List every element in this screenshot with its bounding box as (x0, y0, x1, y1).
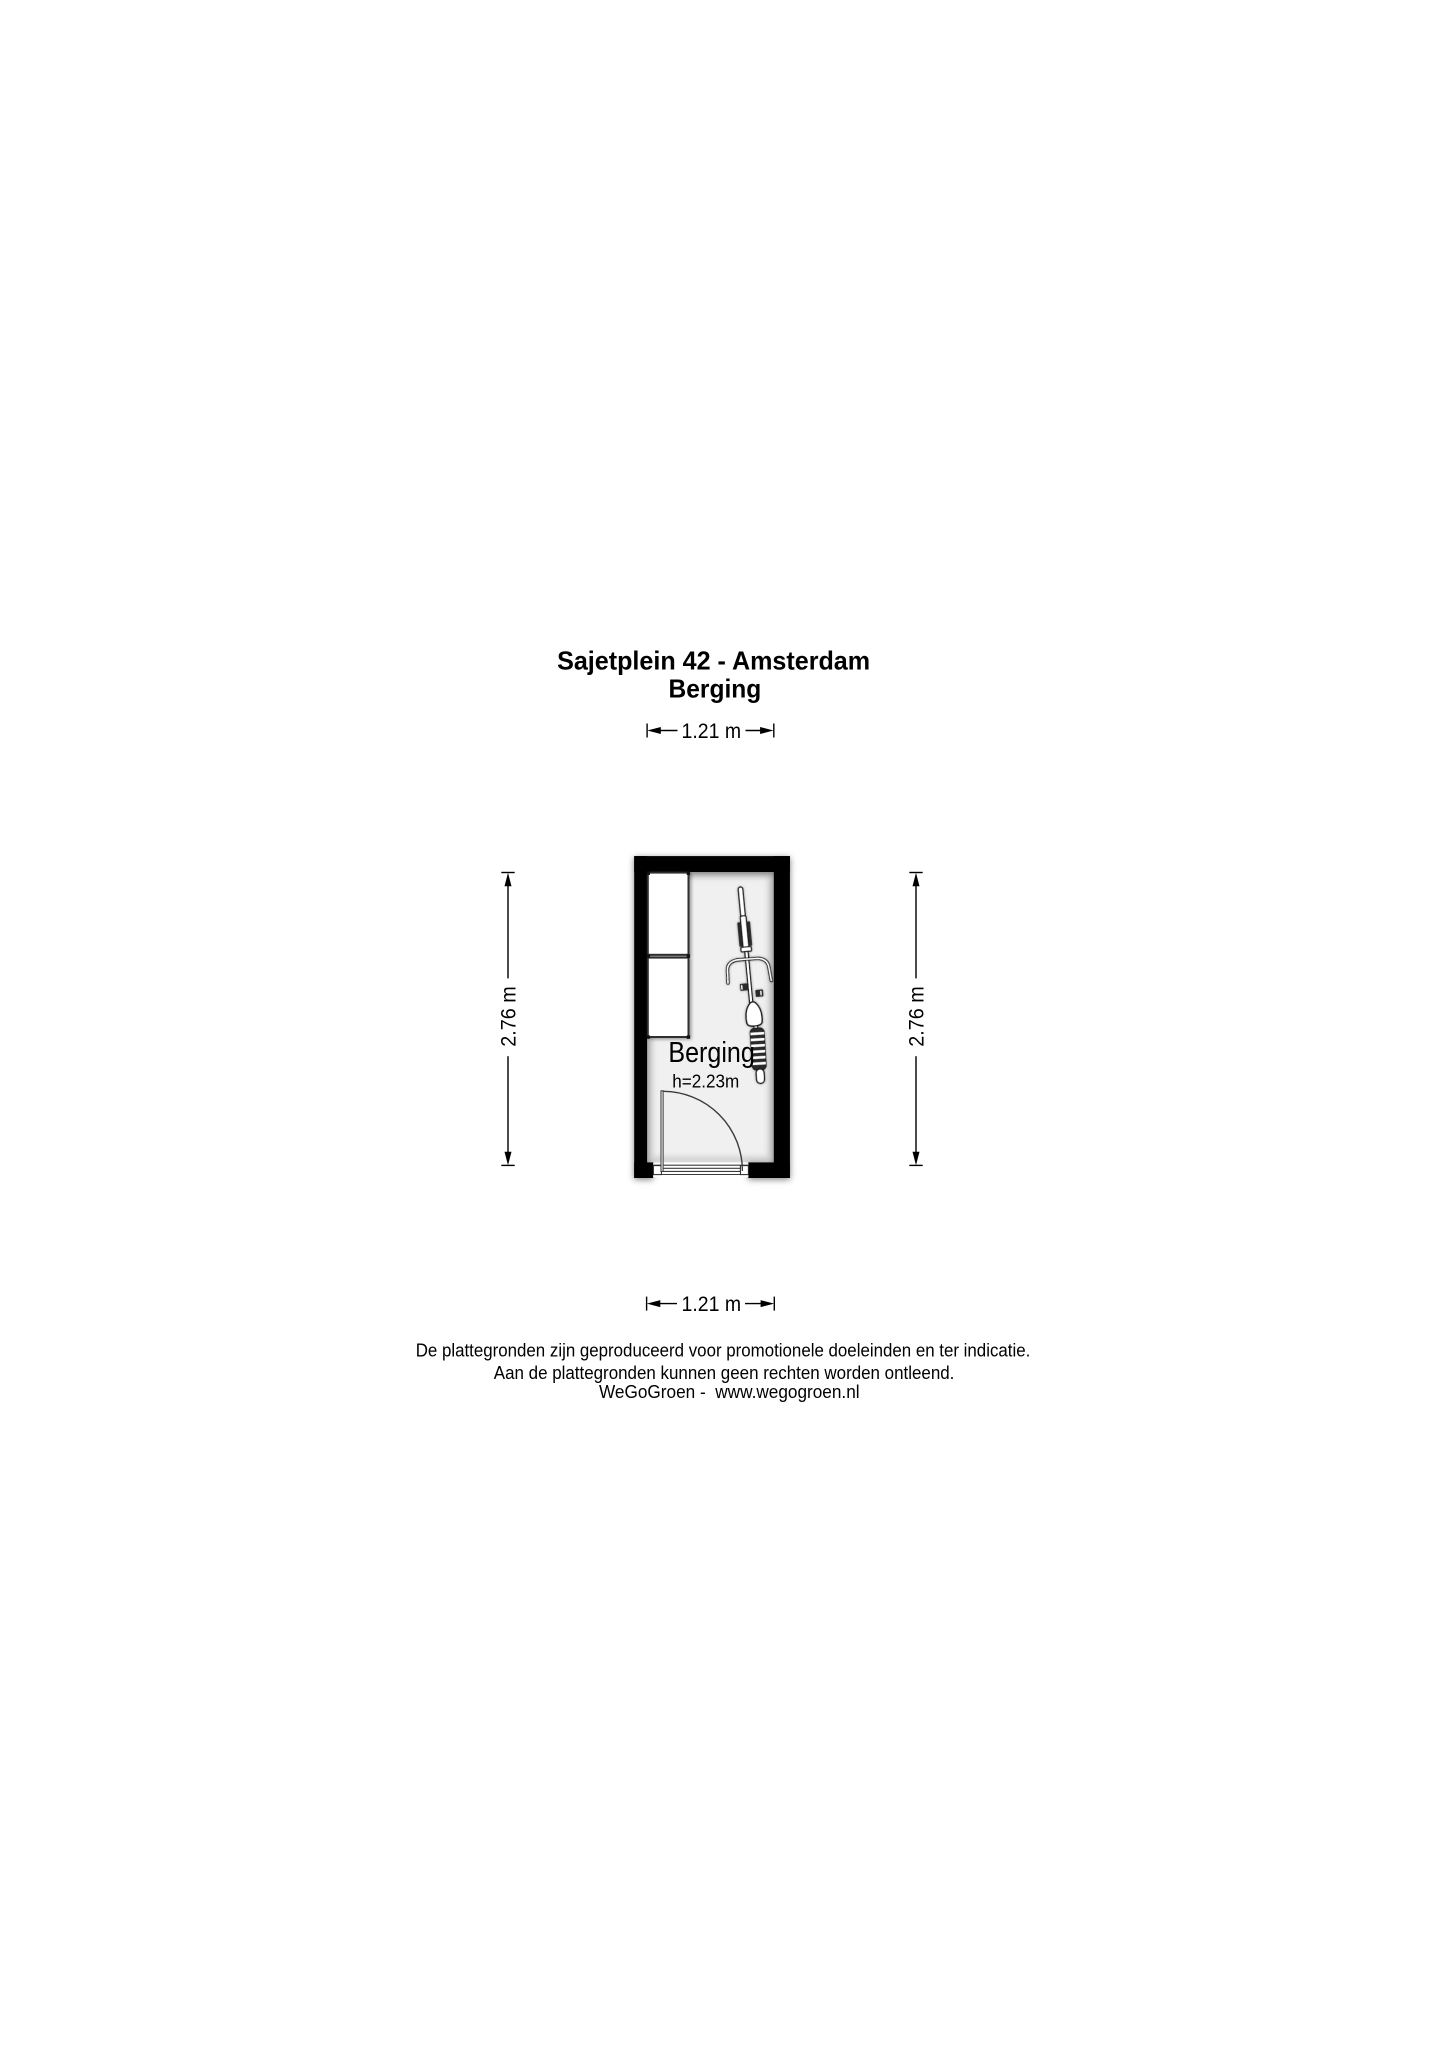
svg-text:1.21 m: 1.21 m (682, 720, 742, 743)
svg-text:WeGoGroen - www.wegogroen.nl: WeGoGroen - www.wegogroen.nl (599, 1382, 860, 1402)
svg-text:2.76 m: 2.76 m (906, 986, 929, 1047)
svg-text:2.76 m: 2.76 m (498, 986, 521, 1047)
svg-text:Berging: Berging (669, 674, 762, 704)
svg-text:Sajetplein 42 - Amsterdam: Sajetplein 42 - Amsterdam (557, 645, 870, 675)
svg-text:1.21 m: 1.21 m (682, 1293, 742, 1316)
svg-text:Berging: Berging (668, 1037, 754, 1069)
svg-text:Aan de plattegronden kunnen ge: Aan de plattegronden kunnen geen rechten… (494, 1363, 955, 1383)
svg-text:De plattegronden zijn geproduc: De plattegronden zijn geproduceerd voor … (416, 1341, 1031, 1361)
svg-text:h=2.23m: h=2.23m (672, 1071, 739, 1092)
